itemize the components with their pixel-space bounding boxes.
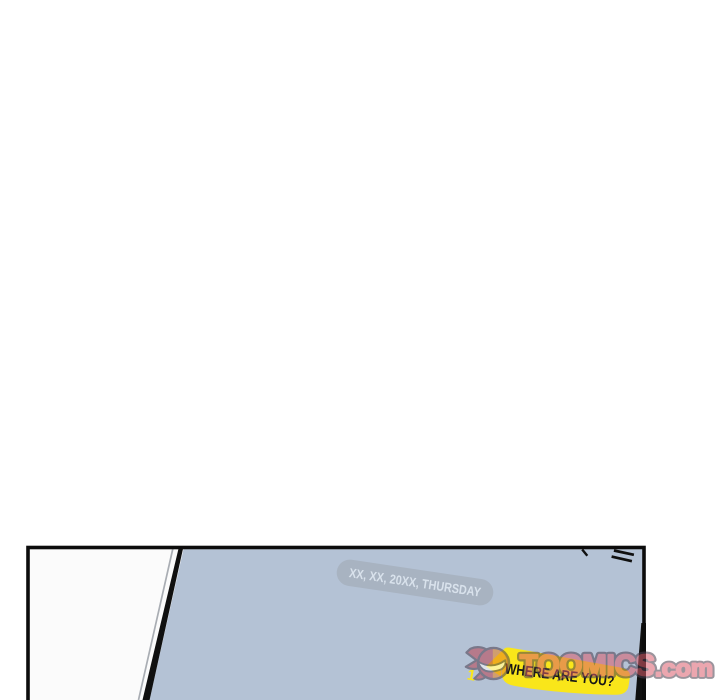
svg-text:TOOMICS: TOOMICS: [520, 650, 655, 682]
svg-text:.com: .com: [655, 655, 713, 681]
